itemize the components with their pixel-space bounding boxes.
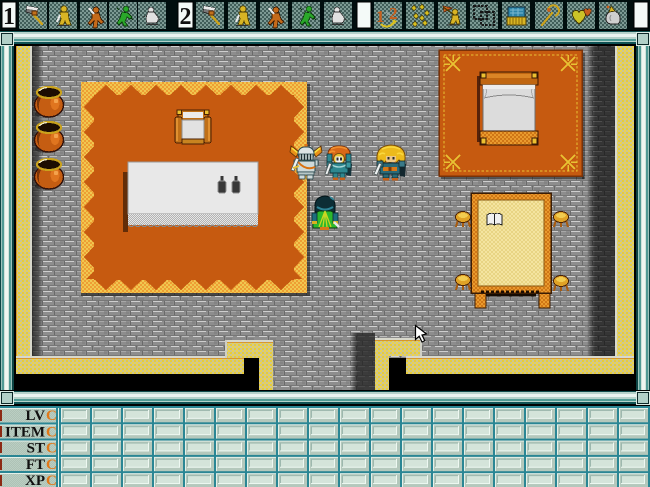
svg-text:1: 1	[3, 4, 15, 30]
svg-text:2: 2	[180, 4, 192, 30]
svg-text:XP: XP	[25, 473, 45, 487]
svg-text:C: C	[46, 457, 57, 473]
svg-text:ST: ST	[27, 441, 45, 457]
svg-text:ITEM: ITEM	[5, 424, 45, 440]
svg-text:C: C	[46, 408, 57, 424]
svg-text:FT: FT	[26, 457, 45, 473]
svg-text:C: C	[46, 424, 57, 440]
svg-text:C: C	[46, 473, 57, 487]
svg-text:LV: LV	[26, 408, 46, 424]
svg-text:C: C	[46, 441, 57, 457]
